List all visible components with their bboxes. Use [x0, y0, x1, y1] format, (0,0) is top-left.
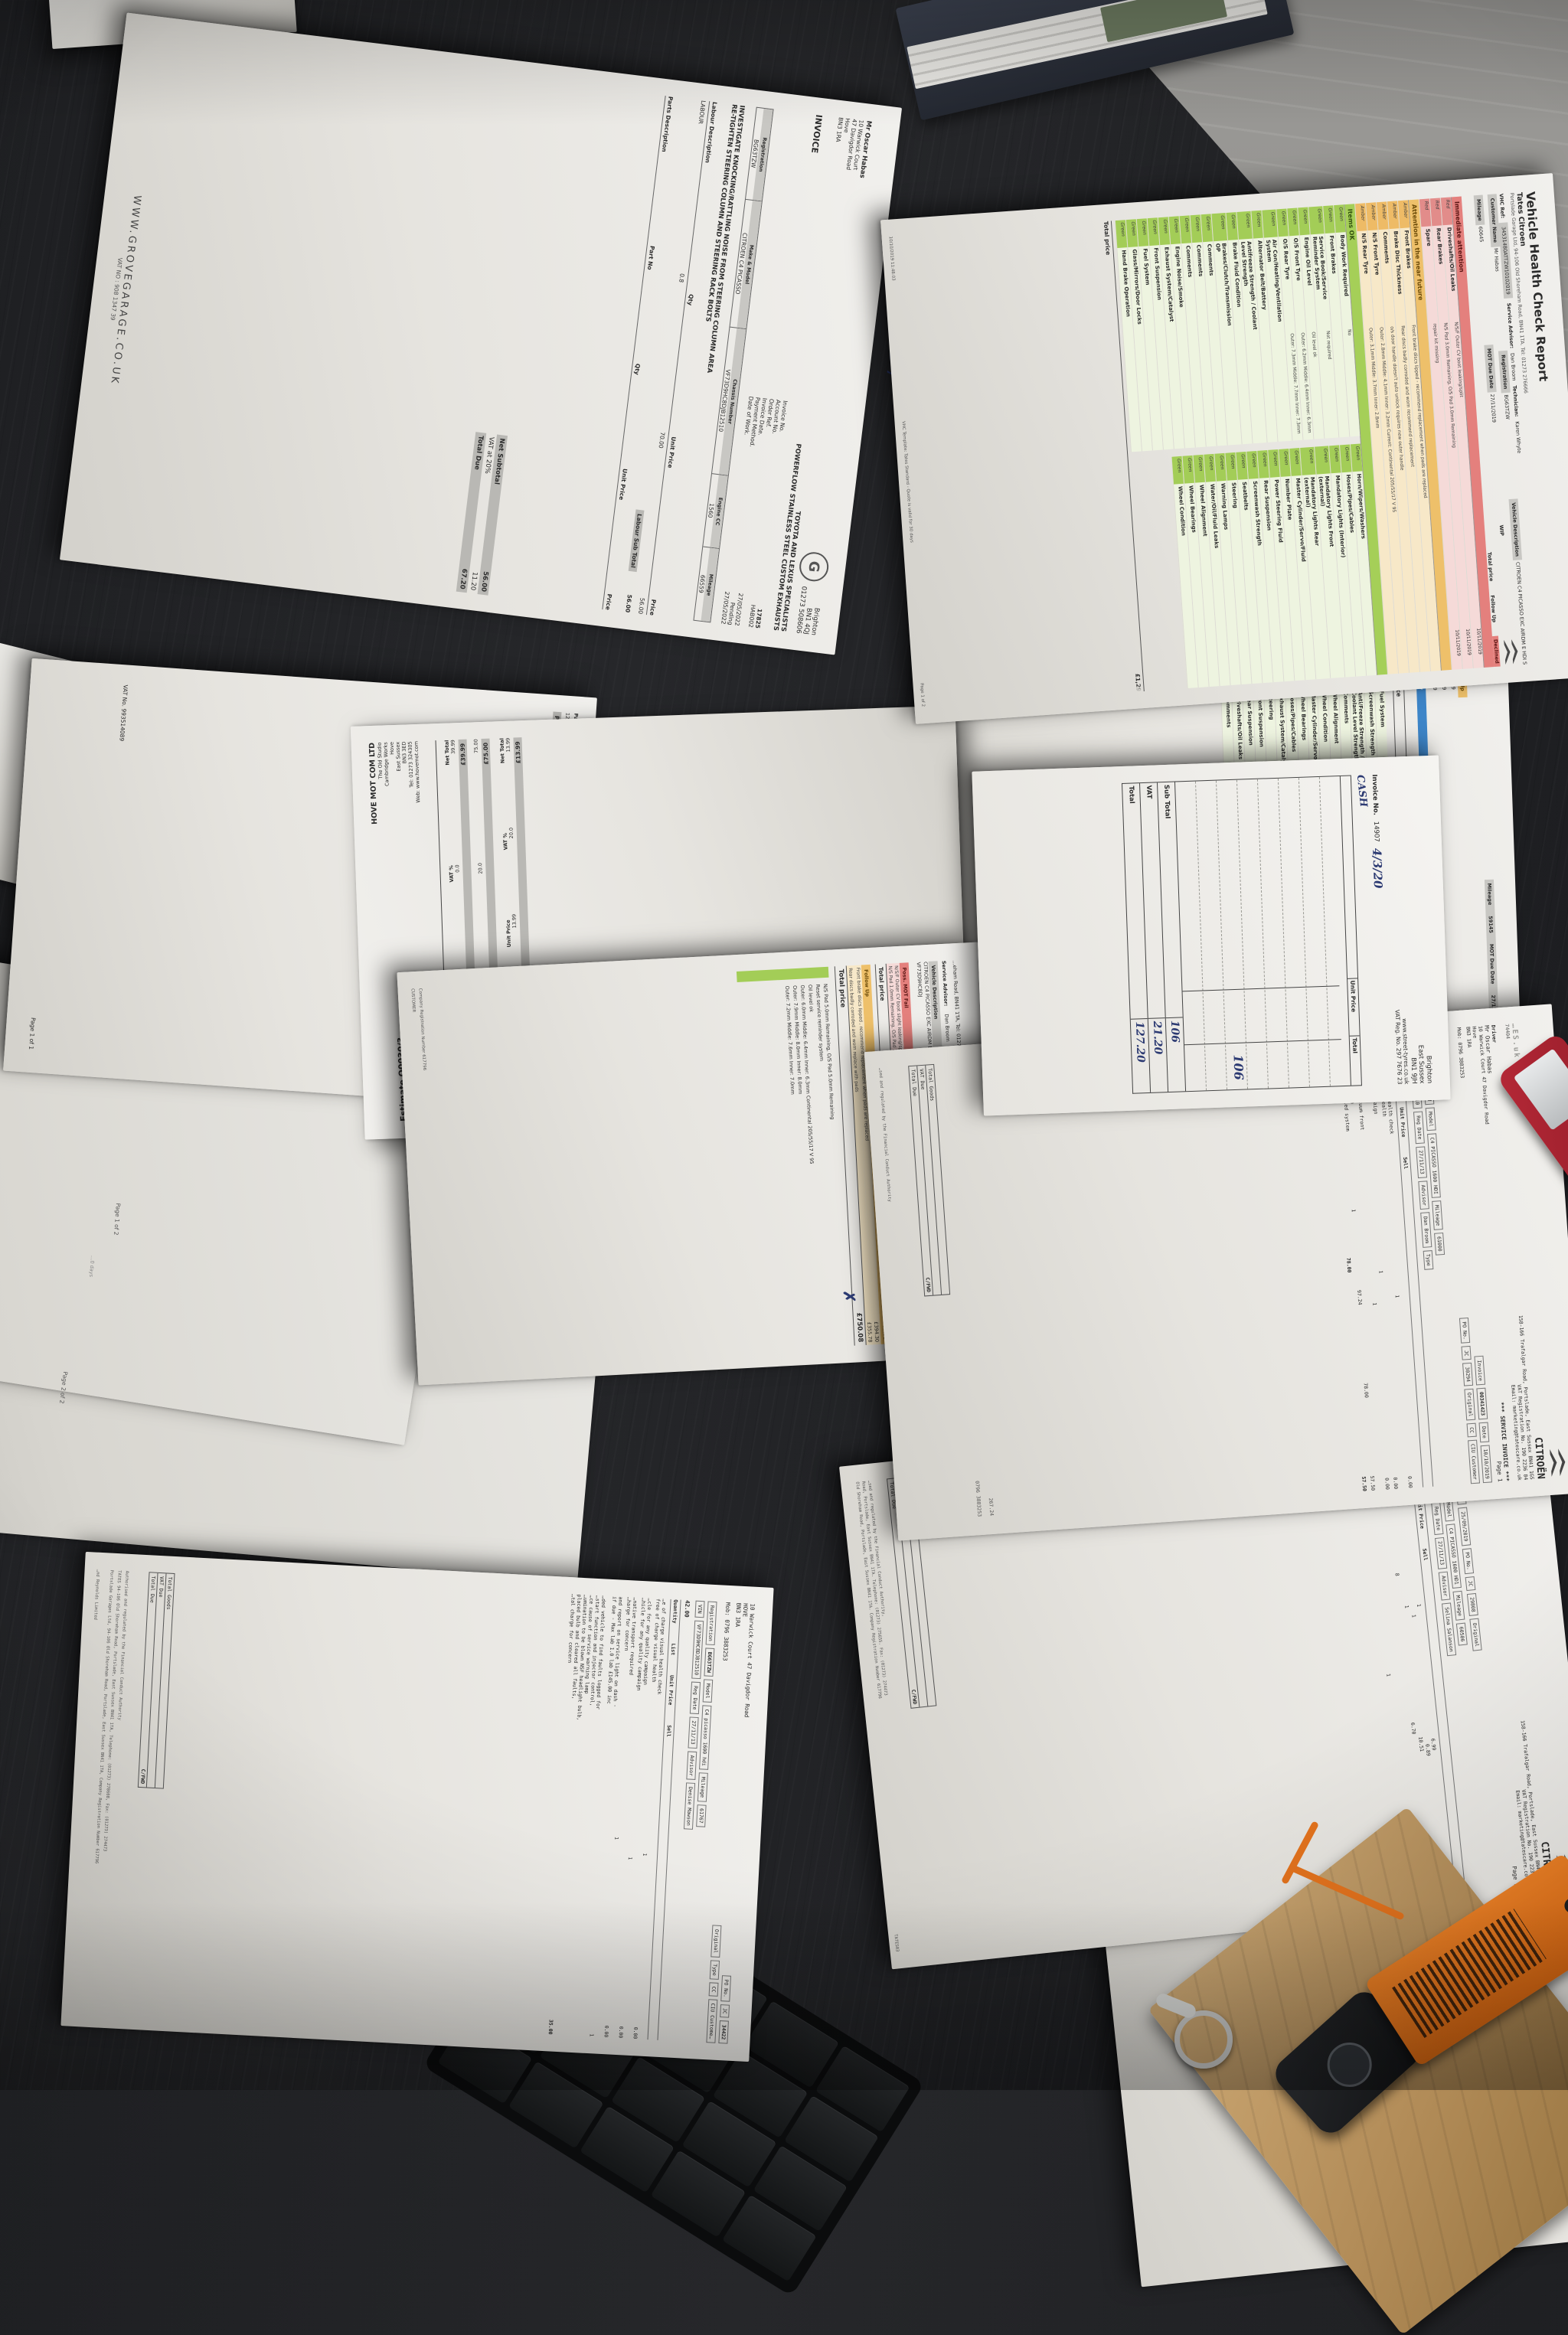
sell: 0.00 — [1383, 1478, 1390, 1490]
model-val: C4 picasso 1600 hdi — [699, 1705, 711, 1770]
note-amount: 35.00 — [547, 2020, 554, 2035]
tag-green: Green — [1201, 214, 1213, 242]
amount: 57.50 — [1361, 1476, 1367, 1491]
invoice-no-label: Invoice No. — [1370, 774, 1380, 815]
type-label: Type — [1423, 1250, 1434, 1270]
tag-green: Green — [1116, 220, 1127, 248]
jc-val: 29808 — [1467, 1593, 1478, 1617]
tag-green: Green — [1257, 450, 1269, 478]
regdate-val: 27/11/13 — [1416, 1146, 1427, 1178]
col-declined: Declined — [1492, 636, 1501, 667]
wip: WIP — [1498, 524, 1505, 536]
citroen-logo-icon — [1500, 638, 1520, 667]
technician: Karen Whyte — [1514, 421, 1522, 453]
grove-garage-invoice: Mr Oscar Habas 10 Warwick Court 47 Davig… — [60, 13, 902, 655]
vehicle-desc-label: Vehicle Description — [930, 965, 939, 1019]
cfwd: C/FWD — [139, 1768, 146, 1784]
mileage-val: 60506 — [1456, 1622, 1468, 1646]
tag-green: Green — [1214, 453, 1226, 482]
tag-green: Green — [1137, 218, 1148, 247]
tag-green: Green — [1315, 446, 1330, 474]
total-price-val: £1,29 — [1134, 673, 1142, 691]
page-num: 1 — [1497, 1478, 1504, 1482]
tag-green: Green — [1276, 208, 1288, 237]
vin-val: VF73D9HC8DJB12510 — [691, 1620, 704, 1679]
tag-green: Green — [1225, 452, 1236, 481]
labour-col: Price — [648, 599, 658, 616]
model-val: C4 PICASSO 1600 HDI — [1427, 1133, 1441, 1198]
labour-col: Qty — [687, 294, 695, 306]
footer-line: …sed and regulated by the Financial Cond… — [877, 1068, 891, 1202]
amber-price1: £394.30 — [872, 1307, 880, 1344]
follow-up-col: Follow Up — [863, 969, 871, 997]
pen-x-mark: ✗ — [840, 1290, 859, 1304]
regdate-label: Reg Date — [1431, 1502, 1443, 1534]
tag-amber: Amber — [1366, 202, 1377, 230]
cfwd: C/FWD — [925, 1277, 932, 1292]
tag-green: Green — [1183, 456, 1194, 484]
company-reg-number: Company Registration Number 617796 — [418, 988, 427, 1071]
reynolds-note: …nd Reynolds Limited — [93, 1569, 100, 1620]
total-price-label: Total price — [877, 967, 886, 1001]
tag-green: Green — [1193, 455, 1204, 483]
qty: 1 — [1394, 1295, 1400, 1298]
tag-green: Green — [1308, 206, 1324, 234]
vat: 20.0 — [477, 863, 484, 874]
col-sell: Sell — [665, 1725, 672, 1737]
tag-hole — [1562, 1895, 1568, 1916]
side-amount: 267.24 — [988, 1497, 995, 1516]
handwritten-date: 4/3/20 — [1370, 848, 1385, 889]
col-unit-price: Unit Price — [1347, 978, 1360, 1035]
tag-green: Green — [1204, 454, 1215, 482]
cfwd: C/FWD — [910, 1689, 918, 1704]
tag-green: Green — [1169, 216, 1181, 244]
vhc-report-page1: Vehicle Health Check Report Tates Citroe… — [880, 173, 1568, 724]
original: Original — [711, 1925, 722, 1958]
mileage-label: Mileage — [1474, 195, 1485, 226]
col-total-price: Total price — [1486, 552, 1494, 582]
handwritten-amount: 106 — [1230, 1054, 1246, 1080]
labour-qty: 0.8 — [678, 273, 685, 283]
tag-green: Green — [1289, 448, 1301, 476]
qty: 1 — [1377, 1270, 1383, 1273]
footer-timestamp: 10/10/2019 11:48:03 — [888, 236, 896, 280]
tag-green: Green — [1329, 445, 1341, 473]
tag-green: Green — [1246, 451, 1258, 479]
jc-val: 34422 — [719, 2020, 730, 2043]
invoice-label: Invoice — [1474, 1356, 1485, 1385]
parts-col: Part No — [646, 245, 656, 270]
footer-template: VHC Template: Tates Standard - Quote is … — [900, 421, 913, 543]
val: 0.00 — [603, 2025, 610, 2037]
advisor-val: Denise Mawson — [684, 1783, 695, 1830]
item-list: 0.89 — [1424, 1744, 1432, 1756]
reg-val: BG63TZW — [704, 1648, 714, 1677]
advisor: Dan Broom — [1509, 353, 1517, 381]
val: 0.00 — [618, 2026, 625, 2038]
tag-amber: Amber — [1355, 203, 1367, 231]
parts-col: Qty — [633, 363, 642, 375]
po-label: PO No. — [721, 1975, 732, 2001]
parts-subtotal-val: £13.99 — [514, 741, 522, 763]
vat-val: 21.20 — [1148, 1017, 1168, 1092]
keyring[interactable] — [1174, 2010, 1233, 2069]
tag-green: Green — [1323, 205, 1334, 233]
advisor-label: Advisor — [1418, 1181, 1429, 1210]
po-label: PO No. — [1462, 1548, 1474, 1575]
qty: 1 — [627, 1857, 633, 1860]
tag-green: Green — [1236, 211, 1252, 240]
item-qty: 1 — [1416, 1604, 1422, 1608]
net: 39.99 — [450, 740, 457, 754]
tag-green: Green — [1340, 444, 1351, 472]
unit: 13.99 — [511, 914, 518, 929]
amount: 78.00 — [1345, 1258, 1352, 1273]
total-due-label: Total Due — [149, 1576, 156, 1603]
tates-fragment: …ES — [1511, 1023, 1521, 1041]
item-list: 6.70 — [1410, 1722, 1417, 1734]
mileage-label: Mileage — [1486, 883, 1493, 905]
garage-website: WWW.GROVEGARAGE.CO.UK — [87, 16, 165, 564]
item-qty: 1 — [1403, 1605, 1410, 1608]
item-qty: 8 — [1394, 1572, 1400, 1576]
regdate-val: 27/11/13 — [688, 1716, 698, 1749]
mot-label: MOT Due Date — [1484, 345, 1496, 393]
qty: 1 — [1351, 1209, 1357, 1212]
fob-emblem — [1318, 2033, 1381, 2096]
vat: 20.0 — [508, 828, 515, 839]
tag-amber: Amber — [1387, 201, 1399, 229]
tag-green: Green — [1351, 443, 1362, 472]
street-tyres-receipt: Brighton East Sussex BN1 9JH www.street-… — [972, 755, 1450, 1115]
col-unitprice: Unit Price — [1399, 1107, 1407, 1138]
sell: 57.50 — [1369, 1475, 1376, 1491]
labour-col: Unit Price — [666, 436, 677, 469]
page-label: Page — [1495, 1461, 1503, 1475]
tag-red: Red — [1419, 198, 1431, 227]
labour-subtotal-val: £39.99 — [459, 743, 467, 766]
total-price-2: £750.08 — [854, 1312, 864, 1342]
tag-green: Green — [1212, 213, 1227, 241]
tag-green: Green — [1226, 212, 1237, 240]
col-total: Total — [1350, 1035, 1361, 1085]
mileage-val: 61767 — [696, 1804, 707, 1827]
parts-col: Unit Price — [618, 469, 629, 501]
tag-green: Green — [1251, 211, 1263, 239]
tag-green: Green — [1279, 449, 1290, 477]
footer-page: Page 1 of 2 — [919, 683, 925, 707]
jc-label: JC — [1462, 1346, 1472, 1360]
citroen-invoice-4: 10 Warwick Court 47 Davigdor Road HOVE B… — [60, 1552, 773, 2062]
labour-subtotal-val: £75.00 — [482, 743, 490, 765]
cc: CC — [1467, 1423, 1477, 1438]
grove-logo: G — [798, 550, 830, 583]
item-qty: 1 — [1410, 1614, 1416, 1618]
val: 0.00 — [632, 2026, 639, 2039]
ciu: CIU Customer — [1468, 1440, 1480, 1484]
tag-green: Green — [1298, 207, 1309, 236]
list: 97.24 — [1356, 1290, 1363, 1305]
mileage-label: Mileage — [1432, 1200, 1443, 1230]
green-band — [737, 967, 829, 982]
fail: Fail — [903, 998, 910, 1008]
qty: 1 — [642, 1853, 648, 1856]
tag-amber: Amber — [1377, 201, 1388, 230]
col-follow-up: Follow Up — [1489, 595, 1497, 622]
side-phone: 0796 3883253 — [974, 1481, 982, 1517]
tag-green: Green — [1268, 449, 1279, 478]
vat-number: VAT No. 993514089 — [118, 684, 129, 741]
tag-green: Green — [1180, 215, 1191, 243]
vhc-ref-label: VHC Ref: — [1498, 194, 1506, 219]
reg-label: Registration — [706, 1601, 717, 1645]
tag-green: Green — [1148, 217, 1159, 246]
page-indicator: Page 1 of 1 — [28, 1017, 37, 1050]
technician-label: Technician: — [1511, 385, 1520, 416]
jc-label: JC — [1465, 1576, 1476, 1591]
vat-due-label: VAT Due — [158, 1576, 165, 1598]
col-sell: Sell — [1421, 1548, 1429, 1560]
garage-vat-no: VAT NO : 908 1347 39 — [80, 15, 154, 563]
original: Original — [1464, 1389, 1475, 1421]
uk-fragment: .uk — [1511, 1041, 1521, 1060]
tag-green: Green — [1262, 209, 1277, 237]
tag-green: Green — [1172, 456, 1184, 485]
qty: 1 — [589, 2033, 595, 2036]
labour-desc: LABOUR — [697, 100, 707, 125]
advisor-val: Dan Broom — [1420, 1212, 1432, 1247]
poss-mot: Poss. MOT — [901, 967, 909, 997]
total-price-label: Total price — [1102, 221, 1112, 256]
invoice-title: INVOICE — [809, 114, 824, 154]
col-sell: Sell — [1402, 1157, 1409, 1169]
date-val: 25/09/2019 — [1458, 1507, 1471, 1546]
total-goods-label: Total Goods — [926, 1068, 935, 1102]
tag-red: Red — [1430, 198, 1442, 226]
mileage-val: 60645 — [1478, 226, 1485, 242]
net: 13.99 — [505, 738, 511, 753]
regdate-label: Reg Date — [1413, 1112, 1425, 1144]
tag-green: Green — [1300, 447, 1315, 475]
regdate-val: 27/11/13 — [1435, 1537, 1447, 1569]
labour-unit: 70.00 — [658, 432, 667, 449]
model-label: Model — [703, 1680, 714, 1703]
total-price-label: Total price — [837, 969, 847, 1008]
tates-tag: TATES03 — [893, 1934, 899, 1952]
net: 75.00 — [472, 739, 479, 753]
tag-green: Green — [1158, 217, 1170, 245]
tag-red: Red — [1441, 197, 1452, 225]
jc-val: 30294 — [1462, 1363, 1473, 1386]
customer-label: CUSTOMER — [410, 988, 416, 1012]
mileage-val: 59145 — [1488, 916, 1494, 933]
vin-label: VIN — [694, 1601, 704, 1618]
customer: Mr Habas — [1493, 248, 1501, 272]
tag-amber: Amber — [1398, 200, 1410, 228]
original: Original — [1469, 1618, 1481, 1651]
mileage-val: 61000 — [1434, 1233, 1445, 1256]
col-quantity: Quantity — [671, 1599, 679, 1624]
mot-val: 27/11/2019 — [1489, 394, 1498, 423]
total-due-val: 67.20 — [458, 568, 468, 589]
mileage-label: Mileage — [697, 1773, 708, 1802]
advisor-label: Service Advisor: — [1506, 302, 1515, 348]
sell: 0.00 — [1392, 1477, 1399, 1489]
date-label: Date — [1479, 1422, 1490, 1442]
po-label: PO No. — [1459, 1318, 1470, 1344]
date-val: 10/10/2019 — [1481, 1445, 1492, 1483]
advisor-label: Advisor — [686, 1751, 697, 1780]
total-goods-label: Total Goods — [165, 1576, 173, 1609]
labour-subtotal-val: 56.00 — [624, 594, 633, 613]
qty: 1 — [613, 1837, 619, 1840]
total-val: 127.20 — [1131, 1018, 1150, 1093]
vat-val: 11.20 — [469, 571, 479, 590]
page-label: Page — [1511, 1866, 1519, 1880]
reg-val: BG63TZW — [1503, 394, 1511, 420]
tag-green: Green — [1334, 204, 1345, 233]
tag-green: Green — [1126, 219, 1138, 247]
cc: CC — [709, 1983, 719, 1997]
vat: 0.0 — [454, 864, 460, 873]
ciu: CIU Custome… — [707, 1999, 718, 2043]
jc-label: JC — [720, 2004, 730, 2018]
col-unitprice: Unit Price — [667, 1675, 675, 1706]
sell: 0.00 — [1406, 1476, 1413, 1488]
citroen-logo-icon — [1544, 1447, 1568, 1479]
total-due-label: Total Due — [910, 1070, 918, 1097]
parts-col: Price — [604, 593, 613, 610]
tag-green: Green — [1191, 214, 1202, 243]
type: Type — [710, 1960, 720, 1980]
net-subtotal-val: 56.00 — [479, 571, 489, 593]
advisor-label: Advisor — [1439, 1571, 1451, 1600]
invoice-no: 14907 — [1372, 821, 1380, 842]
qty: 1 — [1371, 1302, 1377, 1305]
regdate-label: Reg Date — [690, 1682, 701, 1714]
vat-due-label: VAT Due — [918, 1069, 926, 1090]
mileage-label: Mileage — [1452, 1591, 1465, 1620]
unit: 78.00 — [1363, 1383, 1370, 1398]
tag-green: Green — [1236, 452, 1247, 480]
mot-label: MOT Due Date — [1488, 944, 1496, 985]
tag-green: Green — [1287, 207, 1298, 236]
col-list: List — [670, 1643, 677, 1655]
labour-price: 56.00 — [637, 597, 646, 614]
model-label: Model — [1426, 1108, 1436, 1131]
invoice-no: 00341423 — [1476, 1388, 1488, 1420]
qty: 1 — [1385, 1674, 1391, 1677]
